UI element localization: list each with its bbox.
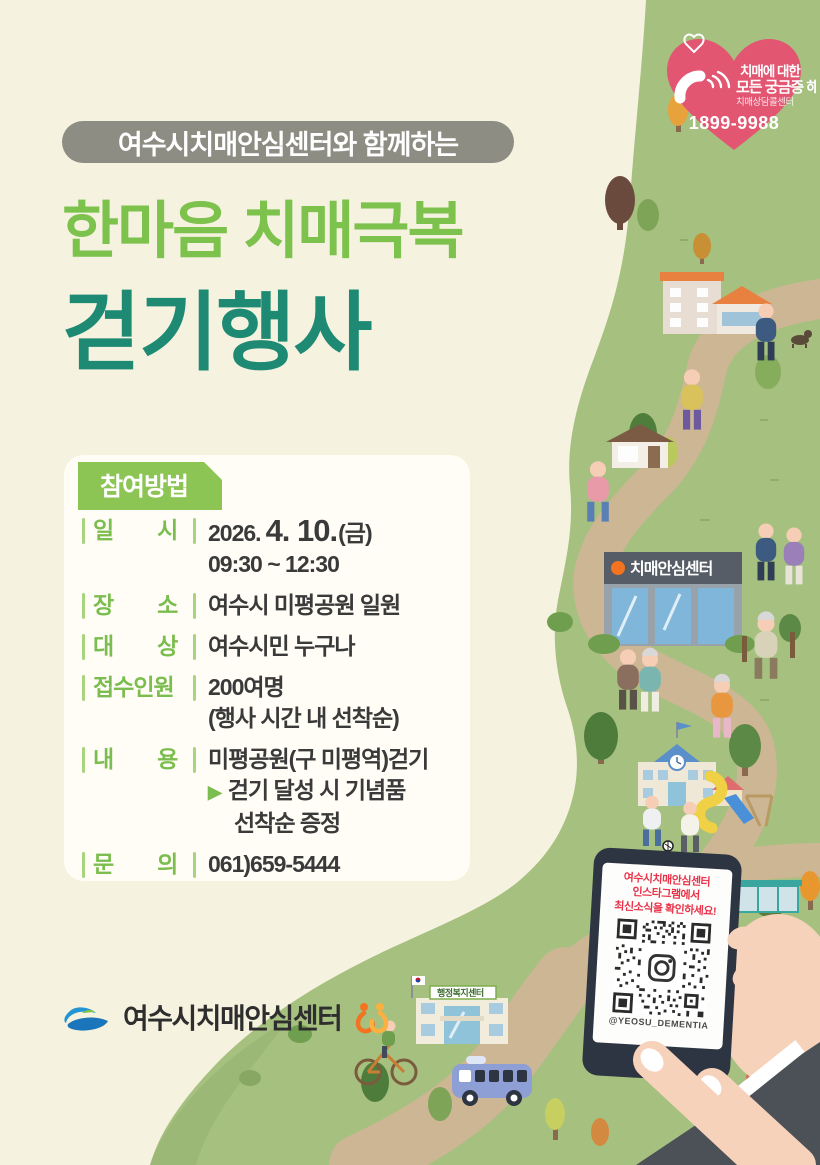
heart-phone-number: 1899-9988 [689,113,780,133]
row-value-target: 여수시민 누구나 [208,631,355,662]
info-row-date: 일 시 2026.4. 10.(금) 09:30 ~ 12:30 [82,515,462,580]
label-bar [82,747,85,773]
footer-org-name: 여수시치매안심센터 [123,997,341,1037]
row-value-content: 미평공원(구 미평역)걷기 ▶걷기 달성 시 기념품 선착순 증정 [208,744,428,839]
main-title-line2: 걷기행사 [62,262,370,387]
care-center-building: 치매안심센터 [588,552,755,654]
hand-fingers [560,880,820,1165]
row-value-date: 2026.4. 10.(금) 09:30 ~ 12:30 [208,515,372,580]
info-row-place: 장 소 여수시 미평공원 일원 [82,590,462,621]
content-note: 선착순 증정 [208,808,428,839]
row-value-place: 여수시 미평공원 일원 [208,590,400,621]
label-bar [82,593,85,619]
arrow-bullet-icon: ▶ [208,782,221,802]
heart-line3: 치매상담콜센터 [736,96,794,108]
row-value-contact: 061)659-5444 [208,849,339,880]
yeosu-city-logo [62,1001,114,1033]
row-label-contact: 문 의 [93,849,187,880]
heart-line2: 모든 궁금증 해결 [736,78,816,96]
label-bar [82,852,85,878]
info-row-capacity: 접수인원 200여명 (행사 시간 내 선착순) [82,672,462,734]
capacity-note: (행사 시간 내 선착순) [208,703,399,734]
event-info-box: 참여방법 일 시 2026.4. 10.(금) 09:30 ~ 12:30 장 … [64,455,470,881]
row-label-capacity: 접수인원 [93,672,187,734]
subtitle-text: 여수시치매안심센터와 함께하는 [118,123,458,162]
welfare-center-sign: 행정복지센터 [437,987,484,998]
dementia-center-logo [350,999,394,1035]
hotline-heart-badge: 치매에 대한 모든 궁금증 해결 치매상담콜센터 1899-9988 [652,28,816,162]
row-label-target: 대 상 [93,631,187,662]
care-center-sign: 치매안심센터 [630,560,713,578]
main-title-line1: 한마음 치매극복 [62,180,463,270]
row-label-place: 장 소 [93,590,187,621]
info-rows: 일 시 2026.4. 10.(금) 09:30 ~ 12:30 장 소 여수시… [82,515,462,890]
label-bar [82,675,85,701]
section-title-badge: 참여방법 [78,462,222,510]
label-bar [193,518,196,544]
event-poster: 치매안심센터 [0,0,820,1165]
subtitle-pill: 여수시치매안심센터와 함께하는 [62,121,514,163]
footer-brand: 여수시치매안심센터 [62,997,394,1037]
info-row-target: 대 상 여수시민 누구나 [82,631,462,662]
label-bar [82,634,85,660]
info-row-content: 내 용 미평공원(구 미평역)걷기 ▶걷기 달성 시 기념품 선착순 증정 [82,744,462,839]
label-bar [193,675,196,701]
label-bar [193,593,196,619]
heart-line1: 치매에 대한 [740,64,801,79]
time-range: 09:30 ~ 12:30 [208,549,372,580]
date-big: 4. 10. [266,513,338,548]
label-bar [82,518,85,544]
info-row-contact: 문 의 061)659-5444 [82,849,462,880]
row-label-date: 일 시 [93,515,187,580]
label-bar [193,747,196,773]
row-label-content: 내 용 [93,744,187,839]
label-bar [193,852,196,878]
label-bar [193,634,196,660]
row-value-capacity: 200여명 (행사 시간 내 선착순) [208,672,399,734]
